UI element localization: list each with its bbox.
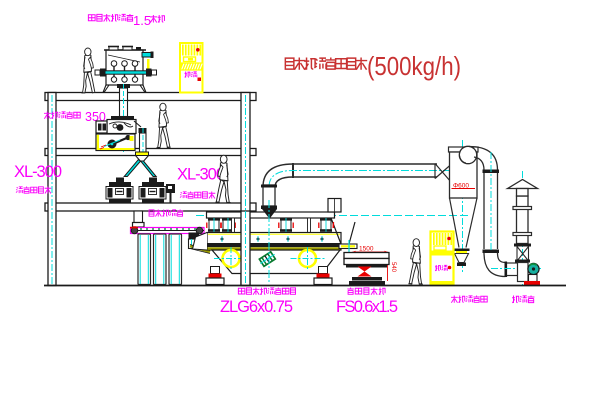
svg-text:XL-300: XL-300 [14, 163, 62, 181]
svg-text:(500kg/h): (500kg/h) [367, 51, 461, 81]
svg-text:ZLG6x0.75: ZLG6x0.75 [220, 298, 293, 316]
svg-text:540: 540 [390, 262, 396, 273]
svg-text:1.5: 1.5 [133, 13, 151, 28]
svg-text:1500: 1500 [359, 246, 374, 253]
svg-text:FS0.6x1.5: FS0.6x1.5 [336, 298, 398, 316]
svg-text:Φ600: Φ600 [453, 183, 469, 190]
